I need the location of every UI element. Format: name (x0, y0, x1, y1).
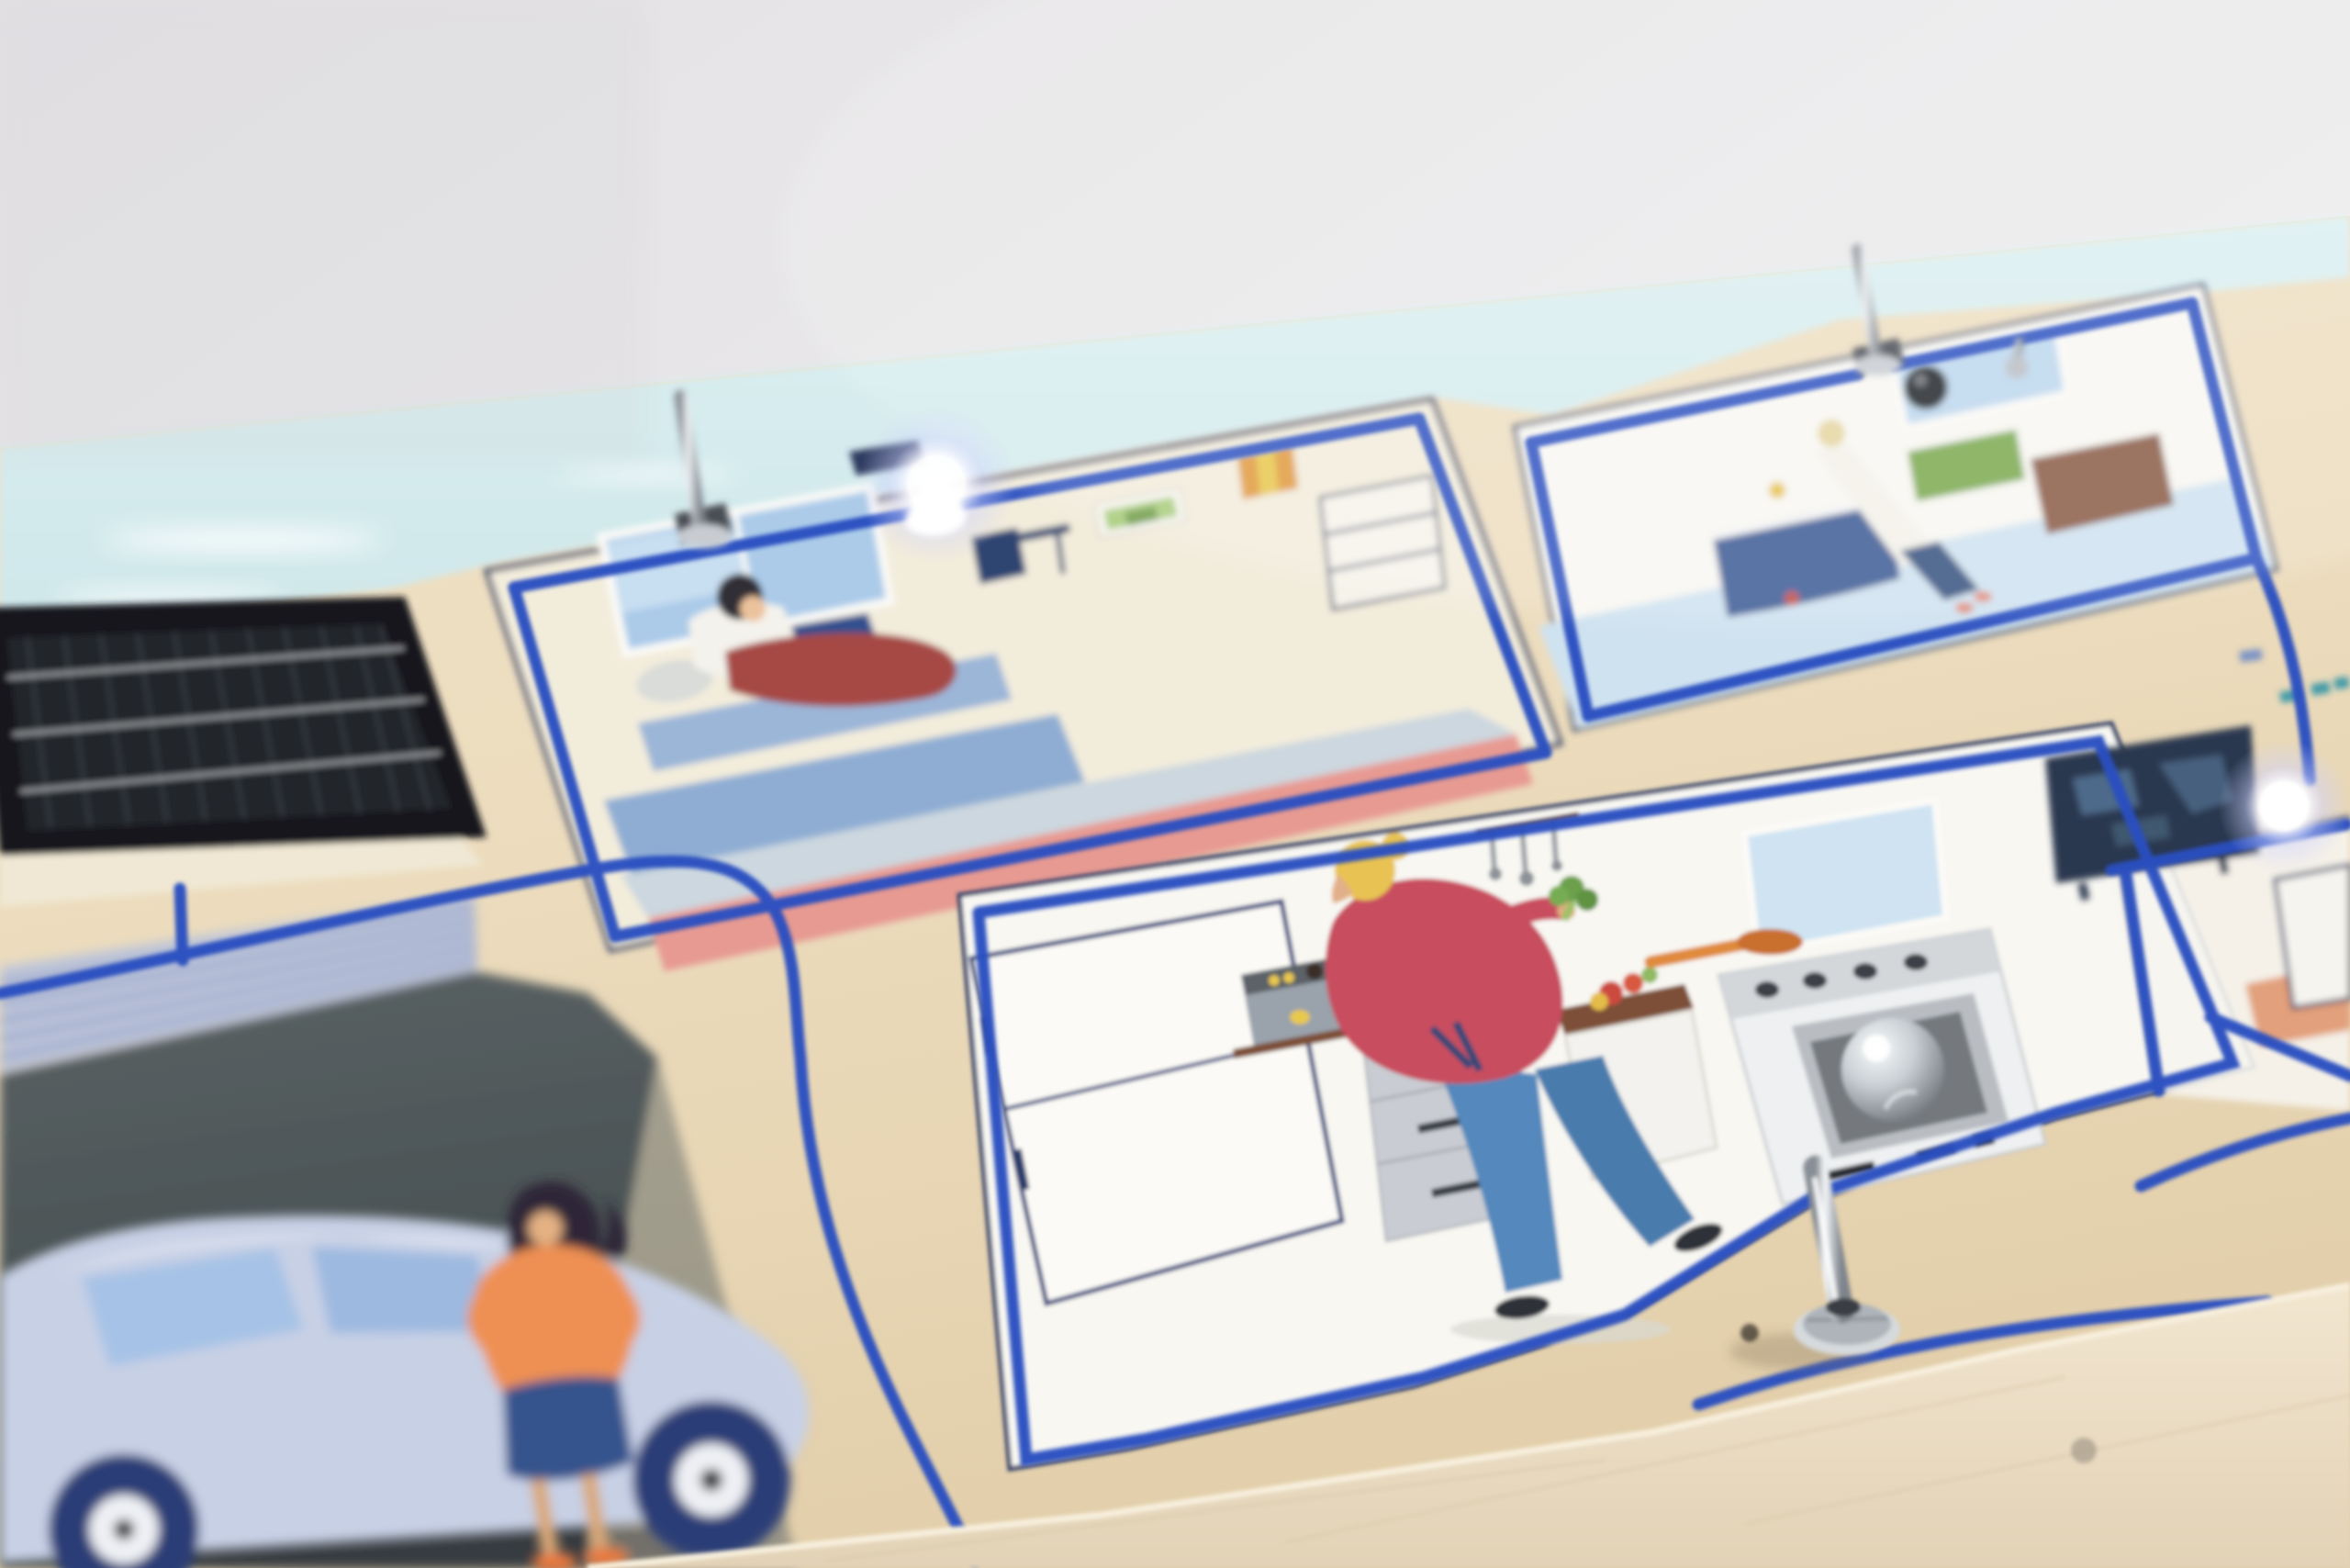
fruit-yellow (1590, 992, 1608, 1011)
switch-nut (678, 524, 732, 548)
cook-arm (1505, 908, 1562, 920)
tv-leg (2082, 883, 2086, 900)
woman-sweater (476, 1245, 634, 1392)
wheel-center (700, 1469, 722, 1491)
cloud (560, 465, 734, 483)
solar-panel (0, 597, 487, 907)
pan (1737, 929, 1803, 955)
dome-led-lens (1841, 1018, 1944, 1121)
lever-collar (1826, 1298, 1861, 1316)
tv-leg (2221, 856, 2225, 874)
corner-shade (0, 0, 643, 459)
dome-specular (1863, 1035, 1890, 1062)
reader-face (740, 596, 766, 622)
photo-smart-home-demo-board (0, 0, 2350, 1568)
board-hole (1740, 1324, 1759, 1342)
coffee-cup (1290, 1010, 1310, 1025)
woman-face (528, 1211, 563, 1246)
woman-skirt (503, 1376, 633, 1480)
reader-trousers (725, 633, 957, 707)
wood-smudge (2071, 1438, 2097, 1463)
scene-canvas (0, 0, 2350, 1568)
wheel-center (114, 1519, 134, 1540)
fruit-green (1641, 967, 1658, 983)
fruit-red (1623, 973, 1643, 993)
cloud (106, 526, 381, 554)
tv-led (2260, 782, 2308, 830)
